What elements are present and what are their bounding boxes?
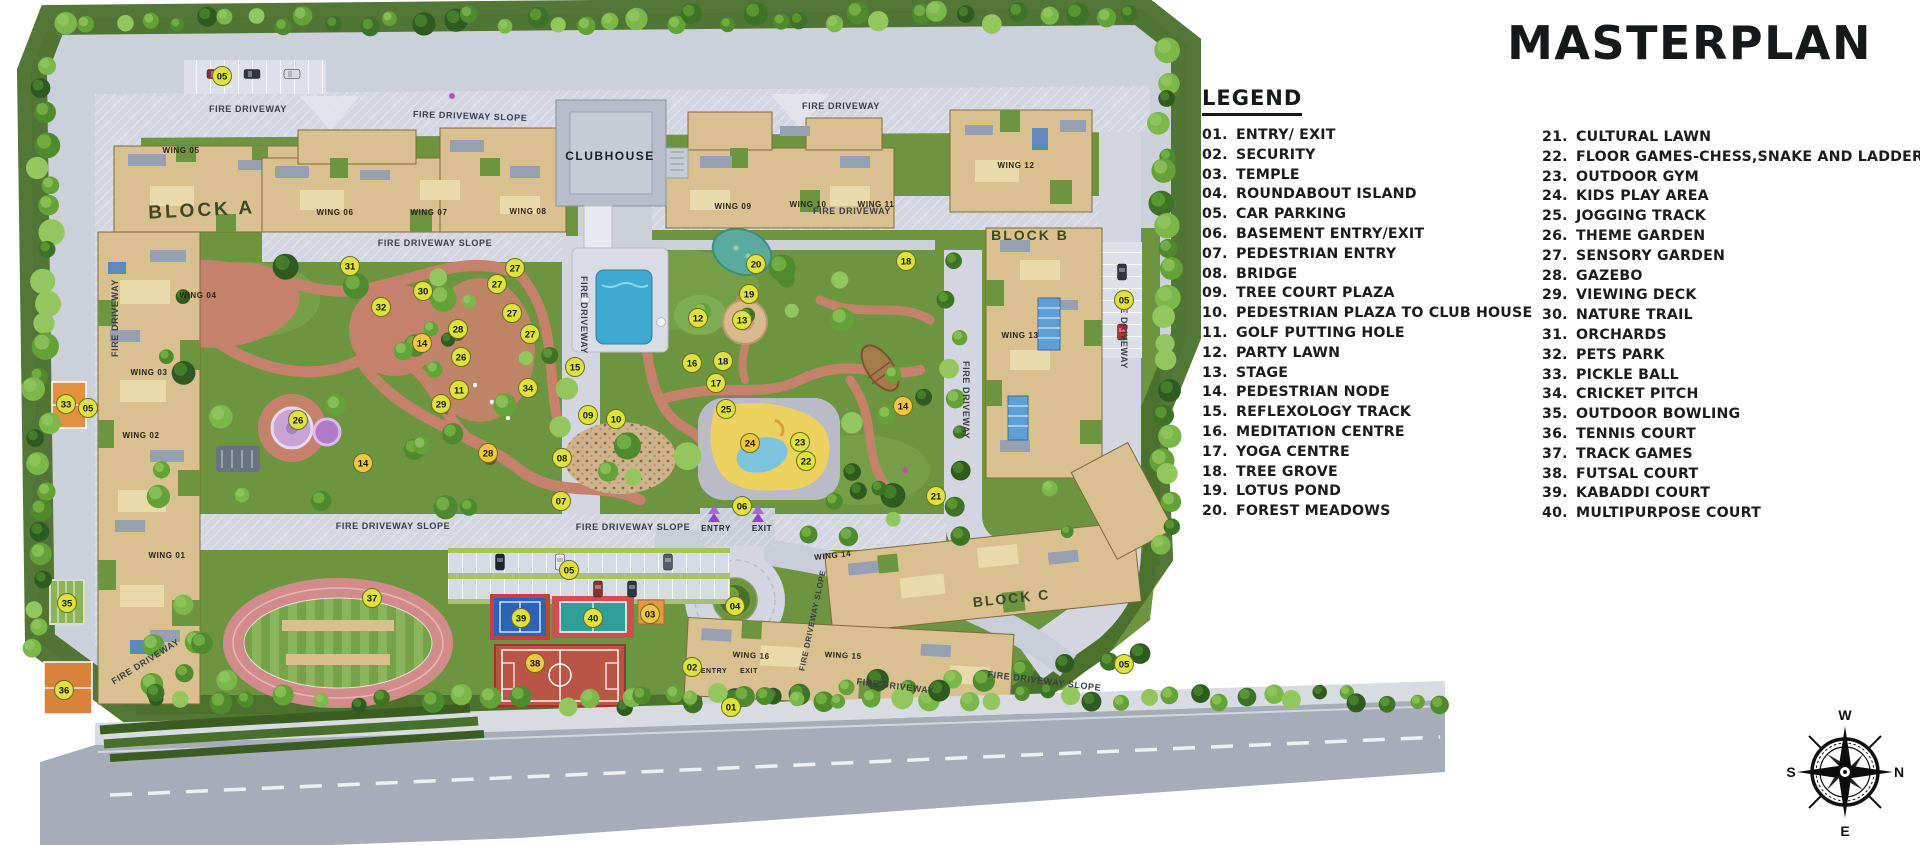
masterplan-page: BLOCK ABLOCK BBLOCK CCLUBHOUSEWING 05WIN… — [0, 0, 1920, 845]
legend-item: 19.LOTUS POND — [1202, 482, 1532, 502]
plan-marker-23: 23 — [791, 433, 810, 452]
plan-marker-27: 27 — [521, 325, 540, 344]
legend-item-number: 11. — [1202, 324, 1236, 344]
plan-marker-27: 27 — [503, 304, 522, 323]
plan-label: WING 09 — [714, 202, 751, 211]
legend-item: 25.JOGGING TRACK — [1542, 207, 1920, 227]
plan-label: FIRE DRIVEWAY — [802, 101, 880, 111]
legend-item-number: 02. — [1202, 146, 1236, 166]
plan-label: WING 06 — [316, 208, 353, 217]
plan-marker-22: 22 — [797, 452, 816, 471]
svg-text:27: 27 — [510, 263, 521, 274]
plan-label: WING 13 — [1001, 331, 1038, 340]
svg-text:05: 05 — [83, 403, 94, 414]
plan-marker-37: 37 — [363, 589, 382, 608]
legend-item-label: OUTDOOR GYM — [1576, 168, 1699, 188]
legend-item: 22.FLOOR GAMES-CHESS,SNAKE AND LADDER — [1542, 148, 1920, 168]
legend-item-label: JOGGING TRACK — [1576, 207, 1706, 227]
plan-marker-26: 26 — [289, 411, 308, 430]
legend-item-number: 21. — [1542, 128, 1576, 148]
legend-item-number: 26. — [1542, 227, 1576, 247]
legend-item: 11.GOLF PUTTING HOLE — [1202, 324, 1532, 344]
legend-item-label: REFLEXOLOGY TRACK — [1236, 403, 1411, 423]
svg-text:27: 27 — [507, 308, 518, 319]
svg-text:28: 28 — [483, 448, 494, 459]
svg-text:23: 23 — [795, 437, 806, 448]
plan-marker-13: 13 — [733, 311, 752, 330]
plan-marker-31: 31 — [341, 257, 360, 276]
legend-item-number: 32. — [1542, 346, 1576, 366]
plan-marker-17: 17 — [707, 374, 726, 393]
legend-item: 15.REFLEXOLOGY TRACK — [1202, 403, 1532, 423]
compass-top-label: W — [1838, 707, 1852, 723]
legend-item-number: 19. — [1202, 482, 1236, 502]
legend-item-label: MULTIPURPOSE COURT — [1576, 504, 1761, 524]
legend-item: 06.BASEMENT ENTRY/EXIT — [1202, 225, 1532, 245]
plan-marker-01: 01 — [722, 698, 741, 717]
plan-marker-04: 04 — [726, 597, 745, 616]
compass-bottom-label: E — [1840, 823, 1849, 838]
legend-item-number: 20. — [1202, 502, 1236, 522]
legend-item: 23.OUTDOOR GYM — [1542, 168, 1920, 188]
legend-item-label: PARTY LAWN — [1236, 344, 1340, 364]
svg-text:14: 14 — [898, 401, 909, 412]
plan-marker-02: 02 — [683, 658, 702, 677]
plan-label: FIRE DRIVEWAY SLOPE — [576, 522, 690, 532]
svg-text:04: 04 — [730, 601, 741, 612]
svg-text:22: 22 — [801, 456, 812, 467]
plan-label: ENTRY — [701, 668, 727, 675]
svg-text:16: 16 — [687, 358, 698, 369]
legend-item: 09.TREE COURT PLAZA — [1202, 284, 1532, 304]
page-title: MASTERPLAN — [1507, 16, 1872, 70]
legend-item: 34.CRICKET PITCH — [1542, 385, 1920, 405]
legend-item-number: 16. — [1202, 423, 1236, 443]
legend-item-number: 15. — [1202, 403, 1236, 423]
legend-item-number: 24. — [1542, 187, 1576, 207]
plan-marker-28: 28 — [479, 444, 498, 463]
legend-item-label: SENSORY GARDEN — [1576, 247, 1725, 267]
legend-item-label: THEME GARDEN — [1576, 227, 1705, 247]
plan-marker-40: 40 — [584, 609, 603, 628]
plan-marker-16: 16 — [683, 354, 702, 373]
legend-item-number: 06. — [1202, 225, 1236, 245]
svg-text:15: 15 — [570, 362, 581, 373]
svg-text:18: 18 — [901, 256, 912, 267]
plan-marker-30: 30 — [414, 282, 433, 301]
legend-item-number: 23. — [1542, 168, 1576, 188]
plan-marker-24: 24 — [741, 434, 760, 453]
legend-item-label: MEDITATION CENTRE — [1236, 423, 1405, 443]
plan-label: WING 05 — [162, 146, 199, 155]
plan-marker-32: 32 — [372, 298, 391, 317]
legend-item-number: 22. — [1542, 148, 1576, 168]
plan-marker-19: 19 — [740, 285, 759, 304]
svg-text:06: 06 — [737, 501, 748, 512]
legend-item-label: TREE GROVE — [1236, 463, 1338, 483]
plan-marker-35: 35 — [58, 594, 77, 613]
plan-marker-11: 11 — [450, 381, 469, 400]
svg-text:33: 33 — [61, 399, 72, 410]
plan-marker-33: 33 — [57, 395, 76, 414]
svg-text:14: 14 — [417, 338, 428, 349]
plan-marker-08: 08 — [553, 449, 572, 468]
legend-item-number: 36. — [1542, 425, 1576, 445]
compass-rose: W N E S — [1785, 706, 1905, 838]
plan-marker-18: 18 — [714, 352, 733, 371]
legend-item-label: OUTDOOR BOWLING — [1576, 405, 1740, 425]
plan-marker-05: 05 — [1115, 291, 1134, 310]
svg-text:40: 40 — [588, 613, 599, 624]
plan-marker-15: 15 — [566, 358, 585, 377]
plan-label: WING 02 — [122, 431, 159, 440]
plan-marker-26: 26 — [452, 348, 471, 367]
plan-label: ENTRY — [701, 524, 731, 533]
svg-text:27: 27 — [525, 329, 536, 340]
legend-column-2: 21.CULTURAL LAWN22.FLOOR GAMES-CHESS,SNA… — [1542, 128, 1920, 524]
plan-marker-09: 09 — [579, 406, 598, 425]
plan-label: CLUBHOUSE — [565, 149, 655, 163]
legend-item: 12.PARTY LAWN — [1202, 344, 1532, 364]
plan-label: FIRE DRIVEWAY — [961, 361, 971, 439]
legend-item-number: 27. — [1542, 247, 1576, 267]
legend-item: 28.GAZEBO — [1542, 267, 1920, 287]
legend-item-label: BRIDGE — [1236, 265, 1297, 285]
svg-text:37: 37 — [367, 593, 378, 604]
compass-right-label: N — [1894, 764, 1904, 780]
legend-item-number: 10. — [1202, 304, 1236, 324]
plan-label: FIRE DRIVEWAY — [813, 206, 891, 216]
legend-item-label: PEDESTRIAN NODE — [1236, 383, 1390, 403]
legend-item-number: 34. — [1542, 385, 1576, 405]
legend-item: 07.PEDESTRIAN ENTRY — [1202, 245, 1532, 265]
legend-item-label: FOREST MEADOWS — [1236, 502, 1391, 522]
legend-item-number: 09. — [1202, 284, 1236, 304]
plan-label: FIRE DRIVEWAY — [110, 279, 120, 357]
svg-text:02: 02 — [687, 662, 698, 673]
legend-item-number: 17. — [1202, 443, 1236, 463]
legend-item-number: 35. — [1542, 405, 1576, 425]
svg-text:05: 05 — [1119, 659, 1130, 670]
legend-item: 10.PEDESTRIAN PLAZA TO CLUB HOUSE — [1202, 304, 1532, 324]
legend-item-label: TEMPLE — [1236, 166, 1300, 186]
legend-item: 36.TENNIS COURT — [1542, 425, 1920, 445]
legend-item-label: TREE COURT PLAZA — [1236, 284, 1395, 304]
plan-marker-14: 14 — [354, 454, 373, 473]
legend-item: 38.FUTSAL COURT — [1542, 465, 1920, 485]
legend-item-label: PEDESTRIAN PLAZA TO CLUB HOUSE — [1236, 304, 1532, 324]
legend-item-label: CULTURAL LAWN — [1576, 128, 1711, 148]
legend-item-label: VIEWING DECK — [1576, 286, 1697, 306]
svg-text:05: 05 — [217, 71, 228, 82]
plan-marker-05: 05 — [79, 399, 98, 418]
legend-item-label: STAGE — [1236, 364, 1288, 384]
legend-item: 30.NATURE TRAIL — [1542, 306, 1920, 326]
plan-marker-20: 20 — [747, 255, 766, 274]
legend-item: 26.THEME GARDEN — [1542, 227, 1920, 247]
svg-text:39: 39 — [516, 613, 527, 624]
legend-item: 29.VIEWING DECK — [1542, 286, 1920, 306]
legend-item: 01.ENTRY/ EXIT — [1202, 126, 1532, 146]
legend-item-label: BASEMENT ENTRY/EXIT — [1236, 225, 1424, 245]
plan-label: FIRE DRIVEWAY — [209, 104, 287, 114]
plan-label: WING 03 — [130, 368, 167, 377]
plan-label: WING 01 — [148, 551, 185, 560]
legend-item-number: 05. — [1202, 205, 1236, 225]
legend-item-label: ROUNDABOUT ISLAND — [1236, 185, 1417, 205]
legend-item-number: 33. — [1542, 366, 1576, 386]
plan-label: EXIT — [740, 668, 758, 675]
legend-item-label: FLOOR GAMES-CHESS,SNAKE AND LADDER — [1576, 148, 1920, 168]
svg-text:14: 14 — [358, 458, 369, 469]
legend-item-label: GOLF PUTTING HOLE — [1236, 324, 1405, 344]
plan-marker-05: 05 — [560, 561, 579, 580]
svg-text:21: 21 — [931, 491, 942, 502]
plan-label: WING 12 — [997, 161, 1034, 170]
plan-marker-14: 14 — [894, 397, 913, 416]
legend-item-number: 40. — [1542, 504, 1576, 524]
legend-item: 33.PICKLE BALL — [1542, 366, 1920, 386]
svg-text:31: 31 — [345, 261, 356, 272]
legend-column-1: 01.ENTRY/ EXIT02.SECURITY03.TEMPLE04.ROU… — [1202, 126, 1532, 522]
legend-item-number: 18. — [1202, 463, 1236, 483]
legend-item-number: 13. — [1202, 364, 1236, 384]
legend-item: 20.FOREST MEADOWS — [1202, 502, 1532, 522]
svg-text:34: 34 — [523, 383, 534, 394]
svg-text:35: 35 — [62, 598, 73, 609]
legend-item-label: KIDS PLAY AREA — [1576, 187, 1709, 207]
svg-text:07: 07 — [556, 496, 567, 507]
legend-item-label: YOGA CENTRE — [1236, 443, 1350, 463]
svg-text:27: 27 — [492, 279, 503, 290]
plan-marker-21: 21 — [927, 487, 946, 506]
legend-item-label: FUTSAL COURT — [1576, 465, 1698, 485]
plan-marker-03: 03 — [641, 605, 660, 624]
svg-text:03: 03 — [645, 609, 656, 620]
plan-label: EXIT — [752, 524, 772, 533]
svg-text:05: 05 — [1119, 295, 1130, 306]
svg-text:01: 01 — [726, 702, 737, 713]
svg-text:30: 30 — [418, 286, 429, 297]
legend-item-number: 01. — [1202, 126, 1236, 146]
svg-text:05: 05 — [564, 565, 575, 576]
svg-text:32: 32 — [376, 302, 387, 313]
plan-marker-10: 10 — [607, 410, 626, 429]
plan-marker-34: 34 — [519, 379, 538, 398]
legend-item-number: 03. — [1202, 166, 1236, 186]
legend-item-number: 30. — [1542, 306, 1576, 326]
legend-item-label: SECURITY — [1236, 146, 1316, 166]
plan-marker-27: 27 — [488, 275, 507, 294]
legend-item-number: 14. — [1202, 383, 1236, 403]
legend-item-label: ORCHARDS — [1576, 326, 1667, 346]
plan-label: FIRE DRIVEWAY — [579, 276, 589, 354]
legend-item-label: LOTUS POND — [1236, 482, 1341, 502]
plan-marker-27: 27 — [506, 259, 525, 278]
legend-item-label: CRICKET PITCH — [1576, 385, 1699, 405]
legend-item: 03.TEMPLE — [1202, 166, 1532, 186]
legend-item-number: 38. — [1542, 465, 1576, 485]
compass-left-label: S — [1786, 764, 1795, 780]
plan-marker-14: 14 — [413, 334, 432, 353]
legend-item: 35.OUTDOOR BOWLING — [1542, 405, 1920, 425]
legend-item: 27.SENSORY GARDEN — [1542, 247, 1920, 267]
plan-label: FIRE DRIVEWAY SLOPE — [378, 238, 492, 248]
legend-item: 32.PETS PARK — [1542, 346, 1920, 366]
plan-label: WING 08 — [509, 207, 546, 216]
svg-text:09: 09 — [583, 410, 594, 421]
svg-text:38: 38 — [530, 658, 541, 669]
svg-text:26: 26 — [293, 415, 304, 426]
plan-marker-25: 25 — [717, 400, 736, 419]
legend-item-label: GAZEBO — [1576, 267, 1643, 287]
legend-item: 39.KABADDI COURT — [1542, 484, 1920, 504]
legend-item: 05.CAR PARKING — [1202, 205, 1532, 225]
plan-label: WING 07 — [410, 208, 447, 217]
svg-text:29: 29 — [436, 399, 447, 410]
legend-item: 08.BRIDGE — [1202, 265, 1532, 285]
svg-text:24: 24 — [745, 438, 756, 449]
svg-text:25: 25 — [721, 404, 732, 415]
svg-text:26: 26 — [456, 352, 467, 363]
svg-text:28: 28 — [453, 324, 464, 335]
legend-item: 16.MEDITATION CENTRE — [1202, 423, 1532, 443]
legend-item-label: PICKLE BALL — [1576, 366, 1679, 386]
legend-item: 31.ORCHARDS — [1542, 326, 1920, 346]
plan-marker-05: 05 — [1115, 655, 1134, 674]
legend-item: 24.KIDS PLAY AREA — [1542, 187, 1920, 207]
legend-item-label: TRACK GAMES — [1576, 445, 1693, 465]
plan-marker-05: 05 — [213, 67, 232, 86]
legend-item-number: 28. — [1542, 267, 1576, 287]
legend-item: 14.PEDESTRIAN NODE — [1202, 383, 1532, 403]
svg-text:17: 17 — [711, 378, 722, 389]
legend-item-label: PEDESTRIAN ENTRY — [1236, 245, 1396, 265]
legend-item-label: NATURE TRAIL — [1576, 306, 1693, 326]
legend-item: 40.MULTIPURPOSE COURT — [1542, 504, 1920, 524]
svg-text:10: 10 — [611, 414, 622, 425]
svg-text:19: 19 — [744, 289, 755, 300]
legend-item: 37.TRACK GAMES — [1542, 445, 1920, 465]
plan-label: BLOCK B — [991, 227, 1069, 243]
legend-item-number: 04. — [1202, 185, 1236, 205]
legend-item-number: 39. — [1542, 484, 1576, 504]
plan-marker-36: 36 — [55, 681, 74, 700]
legend-item-number: 25. — [1542, 207, 1576, 227]
plan-label: WING 04 — [179, 291, 216, 300]
legend-item-number: 29. — [1542, 286, 1576, 306]
legend-item: 17.YOGA CENTRE — [1202, 443, 1532, 463]
svg-text:08: 08 — [557, 453, 568, 464]
svg-text:12: 12 — [693, 313, 704, 324]
legend-panel: LEGEND — [1202, 86, 1302, 130]
plan-marker-38: 38 — [526, 654, 545, 673]
plan-marker-39: 39 — [512, 609, 531, 628]
legend-item-label: KABADDI COURT — [1576, 484, 1710, 504]
svg-text:13: 13 — [737, 315, 748, 326]
plan-marker-29: 29 — [432, 395, 451, 414]
legend-item: 21.CULTURAL LAWN — [1542, 128, 1920, 148]
plan-marker-06: 06 — [733, 497, 752, 516]
svg-text:18: 18 — [718, 356, 729, 367]
svg-text:36: 36 — [59, 685, 70, 696]
legend-heading: LEGEND — [1202, 86, 1302, 116]
legend-item-number: 37. — [1542, 445, 1576, 465]
plan-label: FIRE DRIVEWAY SLOPE — [336, 521, 450, 531]
svg-text:20: 20 — [751, 259, 762, 270]
legend-item: 13.STAGE — [1202, 364, 1532, 384]
legend-item-number: 12. — [1202, 344, 1236, 364]
plan-marker-28: 28 — [449, 320, 468, 339]
legend-item-label: TENNIS COURT — [1576, 425, 1696, 445]
svg-text:11: 11 — [454, 385, 465, 396]
legend-item-label: CAR PARKING — [1236, 205, 1346, 225]
legend-item-number: 07. — [1202, 245, 1236, 265]
plan-marker-18: 18 — [897, 252, 916, 271]
legend-item-number: 31. — [1542, 326, 1576, 346]
legend-item: 18.TREE GROVE — [1202, 463, 1532, 483]
legend-item-label: PETS PARK — [1576, 346, 1665, 366]
legend-item-number: 08. — [1202, 265, 1236, 285]
legend-item: 02.SECURITY — [1202, 146, 1532, 166]
plan-marker-07: 07 — [552, 492, 571, 511]
plan-marker-12: 12 — [689, 309, 708, 328]
legend-item-label: ENTRY/ EXIT — [1236, 126, 1336, 146]
legend-item: 04.ROUNDABOUT ISLAND — [1202, 185, 1532, 205]
